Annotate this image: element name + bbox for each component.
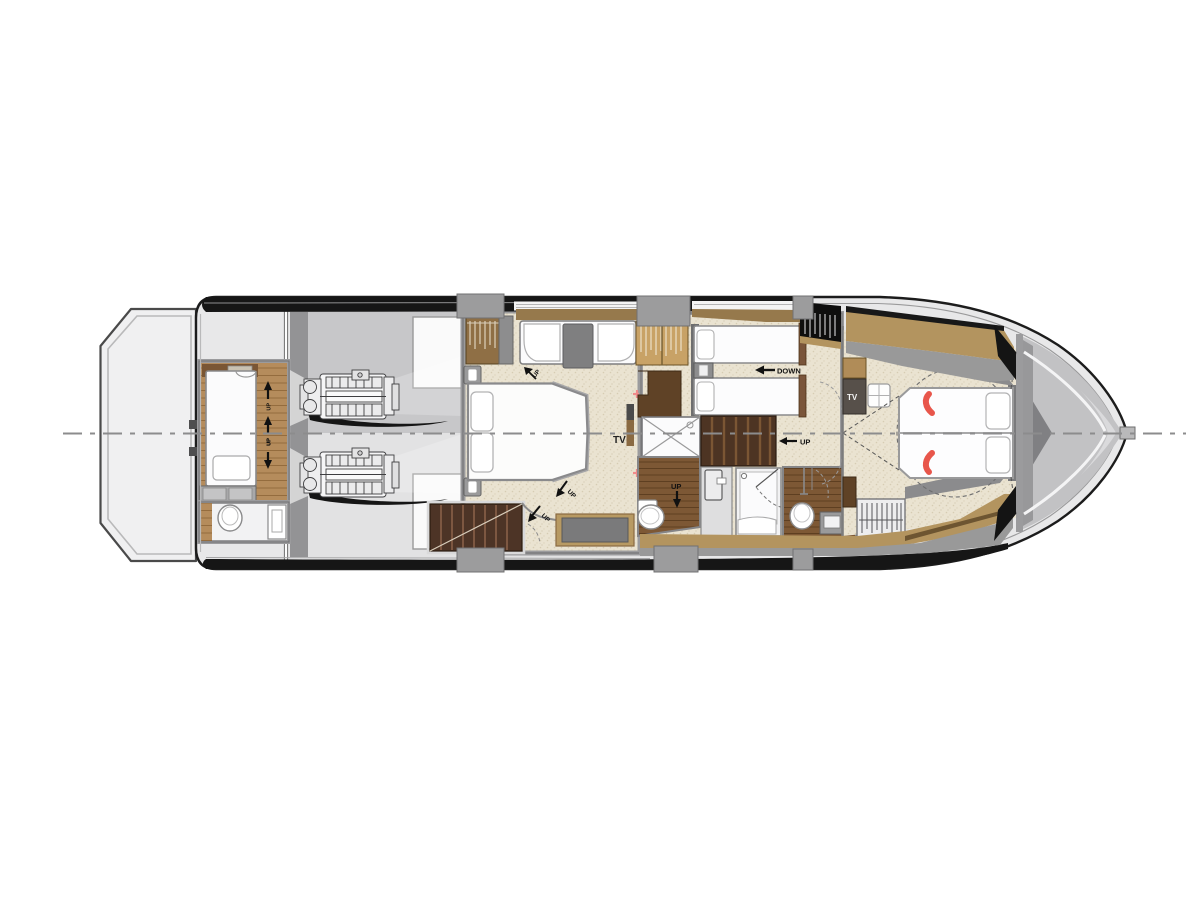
svg-text:UP: UP [267, 438, 273, 446]
svg-text:TV: TV [847, 393, 858, 402]
svg-text:TV: TV [613, 435, 626, 446]
svg-text:UP: UP [800, 438, 810, 447]
svg-text:UP: UP [267, 403, 273, 411]
svg-text:UP: UP [671, 482, 681, 491]
svg-text:DOWN: DOWN [777, 367, 801, 376]
